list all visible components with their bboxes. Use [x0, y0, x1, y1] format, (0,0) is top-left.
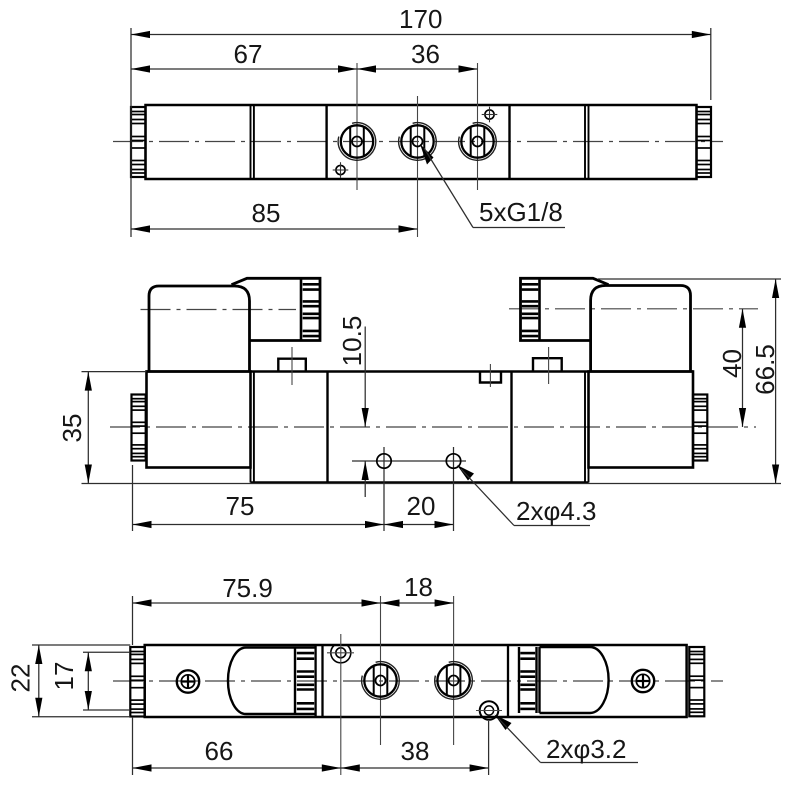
- svg-text:38: 38: [401, 736, 430, 766]
- svg-text:5xG1/8: 5xG1/8: [479, 197, 563, 227]
- svg-text:85: 85: [252, 198, 281, 228]
- svg-text:10.5: 10.5: [337, 316, 367, 367]
- svg-text:35: 35: [57, 414, 87, 443]
- svg-text:40: 40: [717, 349, 747, 378]
- svg-text:66.5: 66.5: [750, 344, 780, 395]
- svg-text:22: 22: [6, 664, 36, 693]
- svg-text:75.9: 75.9: [222, 573, 273, 603]
- svg-text:17: 17: [49, 662, 79, 691]
- svg-text:36: 36: [411, 39, 440, 69]
- svg-text:170: 170: [399, 4, 442, 34]
- svg-text:20: 20: [407, 491, 436, 521]
- svg-text:75: 75: [226, 491, 255, 521]
- svg-text:18: 18: [404, 572, 433, 602]
- svg-text:66: 66: [205, 736, 234, 766]
- svg-text:2xφ4.3: 2xφ4.3: [516, 496, 596, 526]
- svg-text:67: 67: [234, 39, 263, 69]
- svg-text:2xφ3.2: 2xφ3.2: [546, 734, 626, 764]
